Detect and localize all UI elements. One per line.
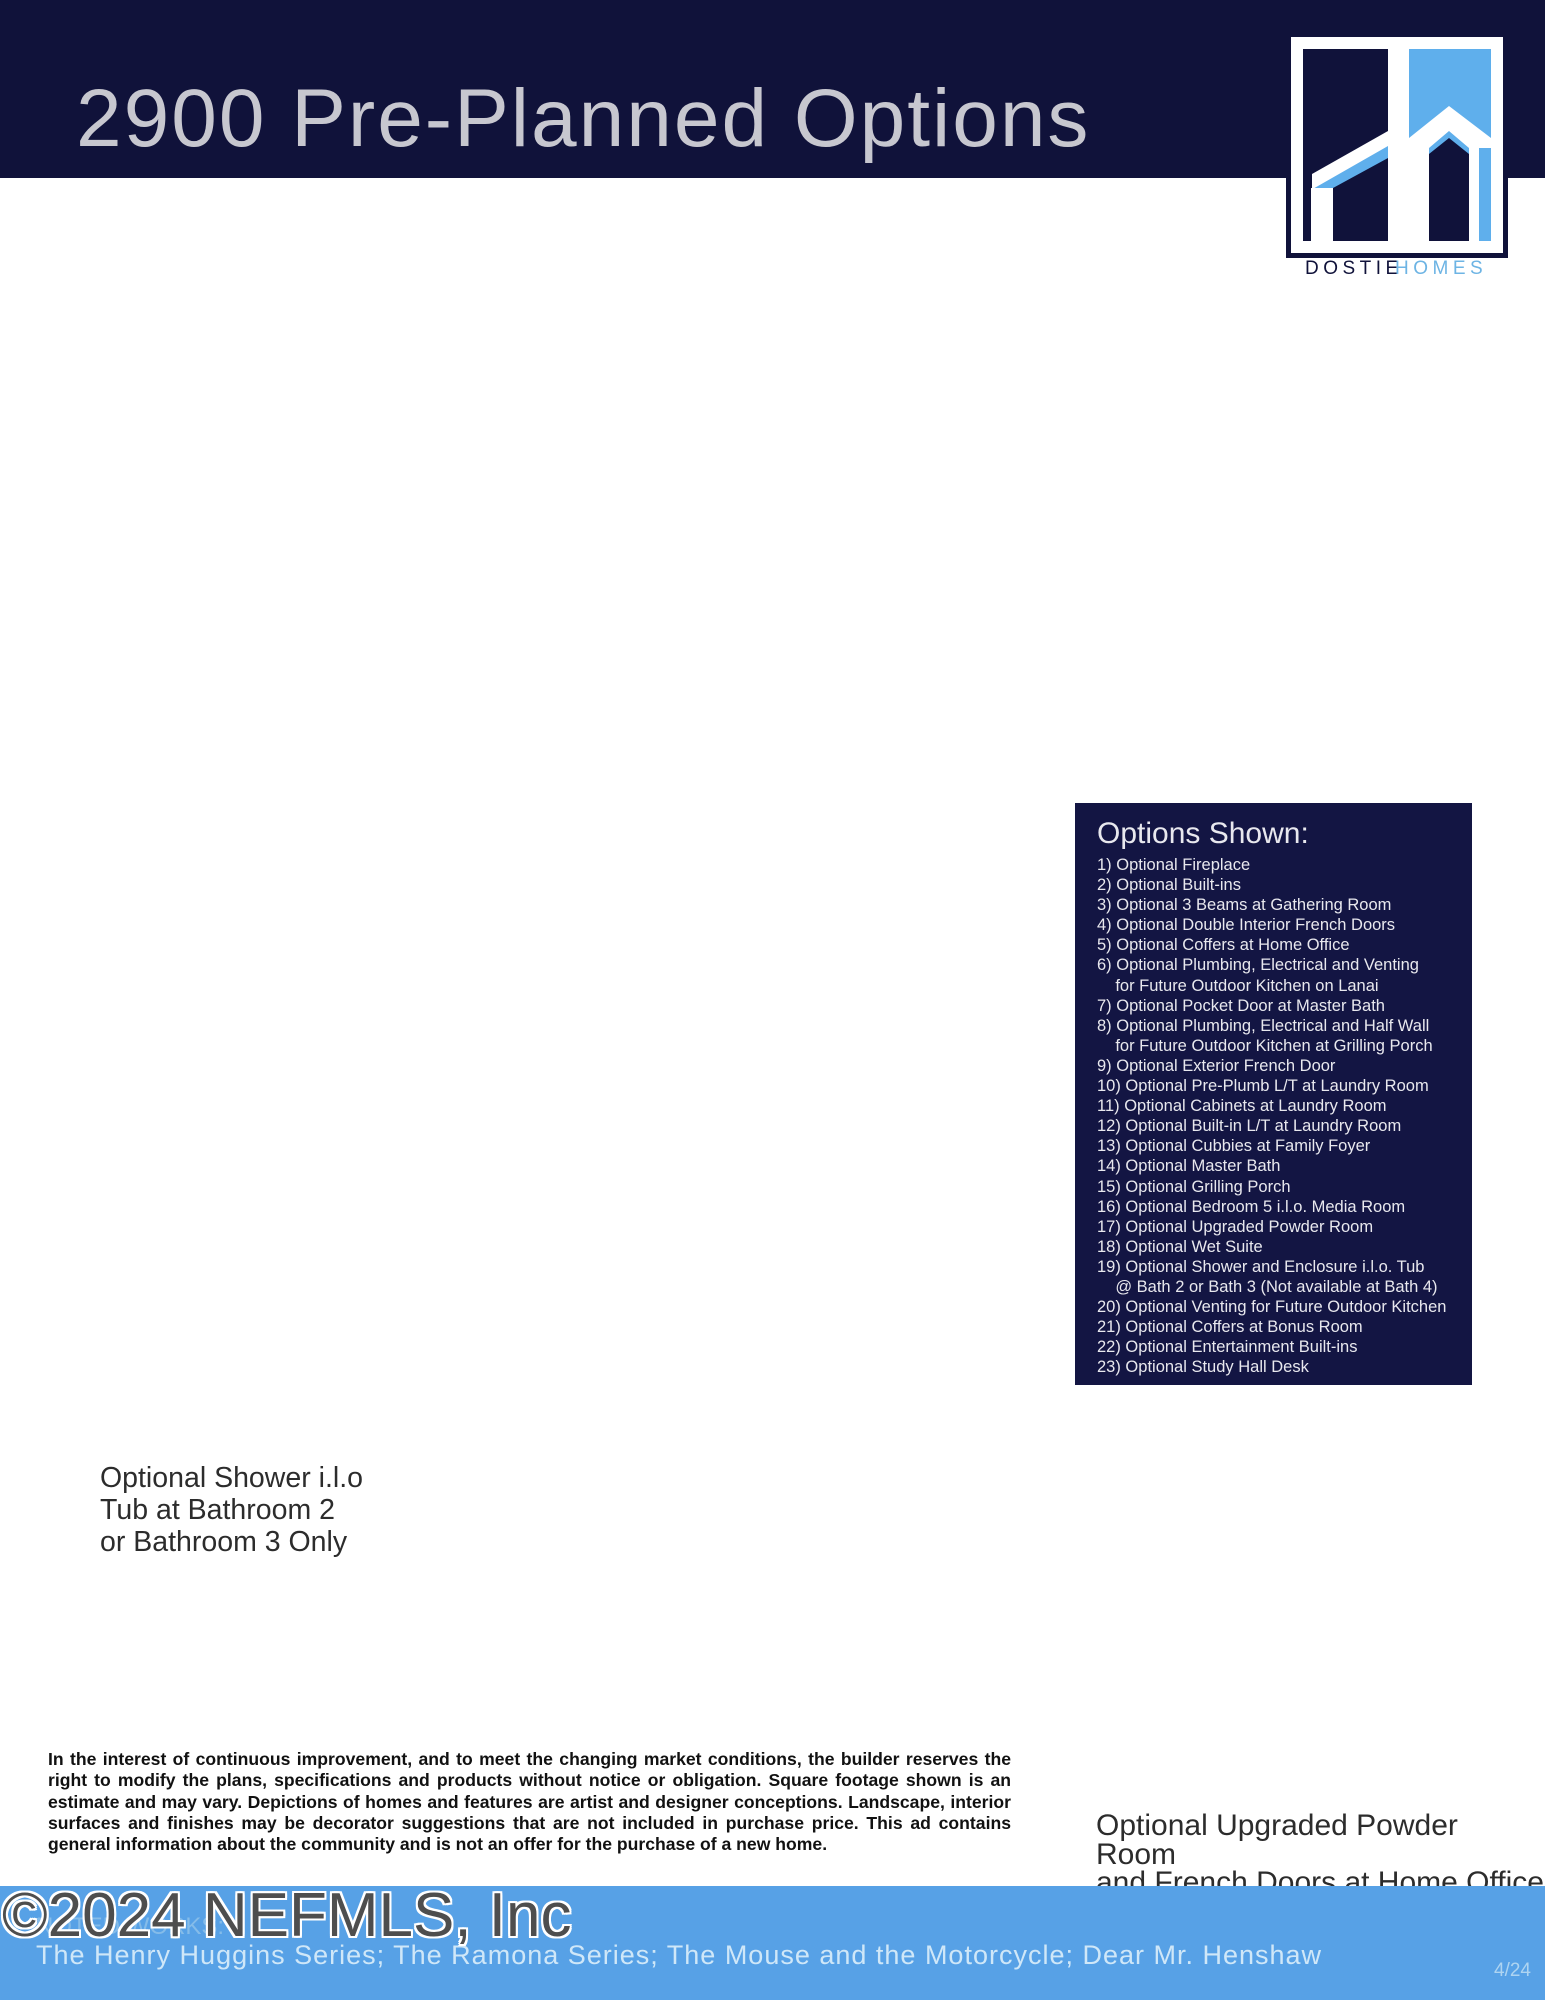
svg-text:DOSTIE: DOSTIE xyxy=(1305,258,1403,278)
svg-text:HOMES: HOMES xyxy=(1395,258,1487,278)
